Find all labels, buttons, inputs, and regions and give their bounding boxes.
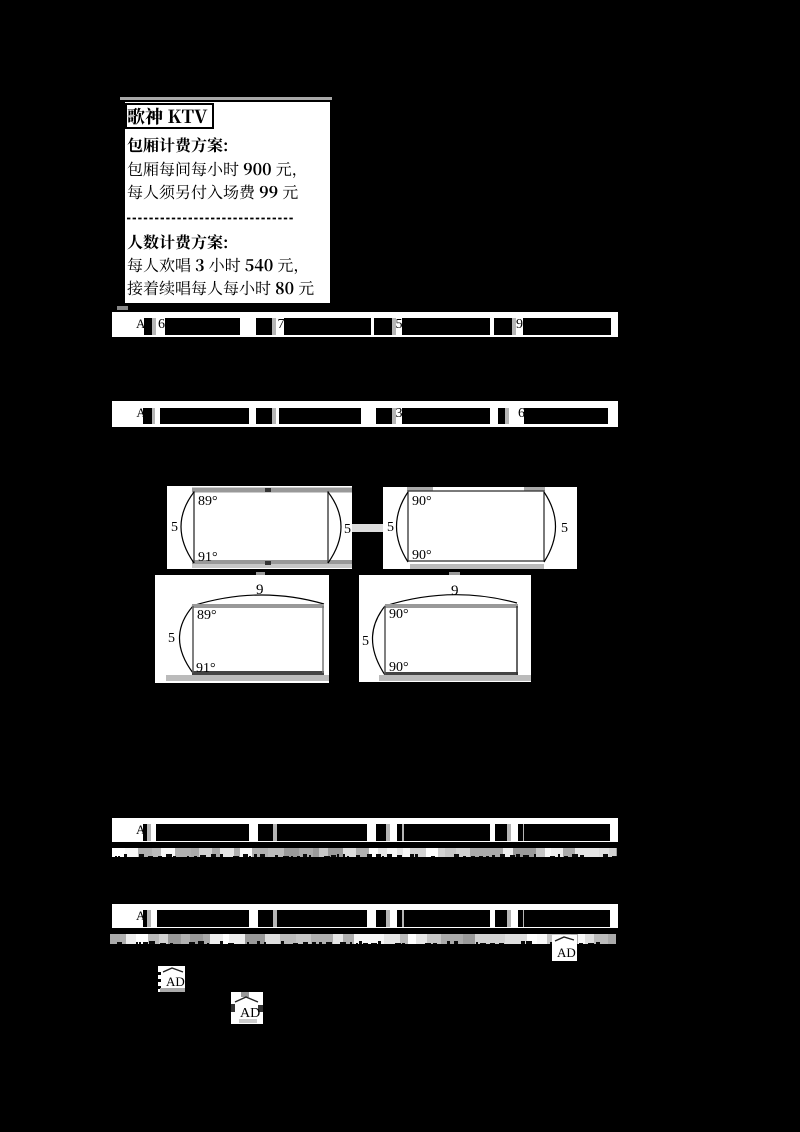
svg-text:90°: 90° — [412, 494, 432, 509]
svg-text:5: 5 — [168, 631, 175, 646]
svg-text:91°: 91° — [198, 550, 218, 565]
svg-text:90°: 90° — [412, 548, 432, 563]
svg-text:9: 9 — [451, 583, 459, 599]
svg-text:5: 5 — [561, 521, 568, 536]
svg-text:AD: AD — [166, 974, 185, 989]
svg-text:AD: AD — [240, 1006, 260, 1021]
svg-text:90°: 90° — [389, 660, 409, 675]
svg-text:5: 5 — [344, 522, 351, 537]
svg-text:89°: 89° — [197, 608, 217, 623]
svg-text:89°: 89° — [198, 494, 218, 509]
svg-text:AD: AD — [557, 945, 576, 960]
svg-text:91°: 91° — [196, 661, 216, 676]
svg-text:5: 5 — [387, 520, 394, 535]
svg-text:90°: 90° — [389, 607, 409, 622]
svg-text:5: 5 — [171, 520, 178, 535]
svg-text:9: 9 — [256, 582, 264, 598]
svg-text:5: 5 — [362, 634, 369, 649]
